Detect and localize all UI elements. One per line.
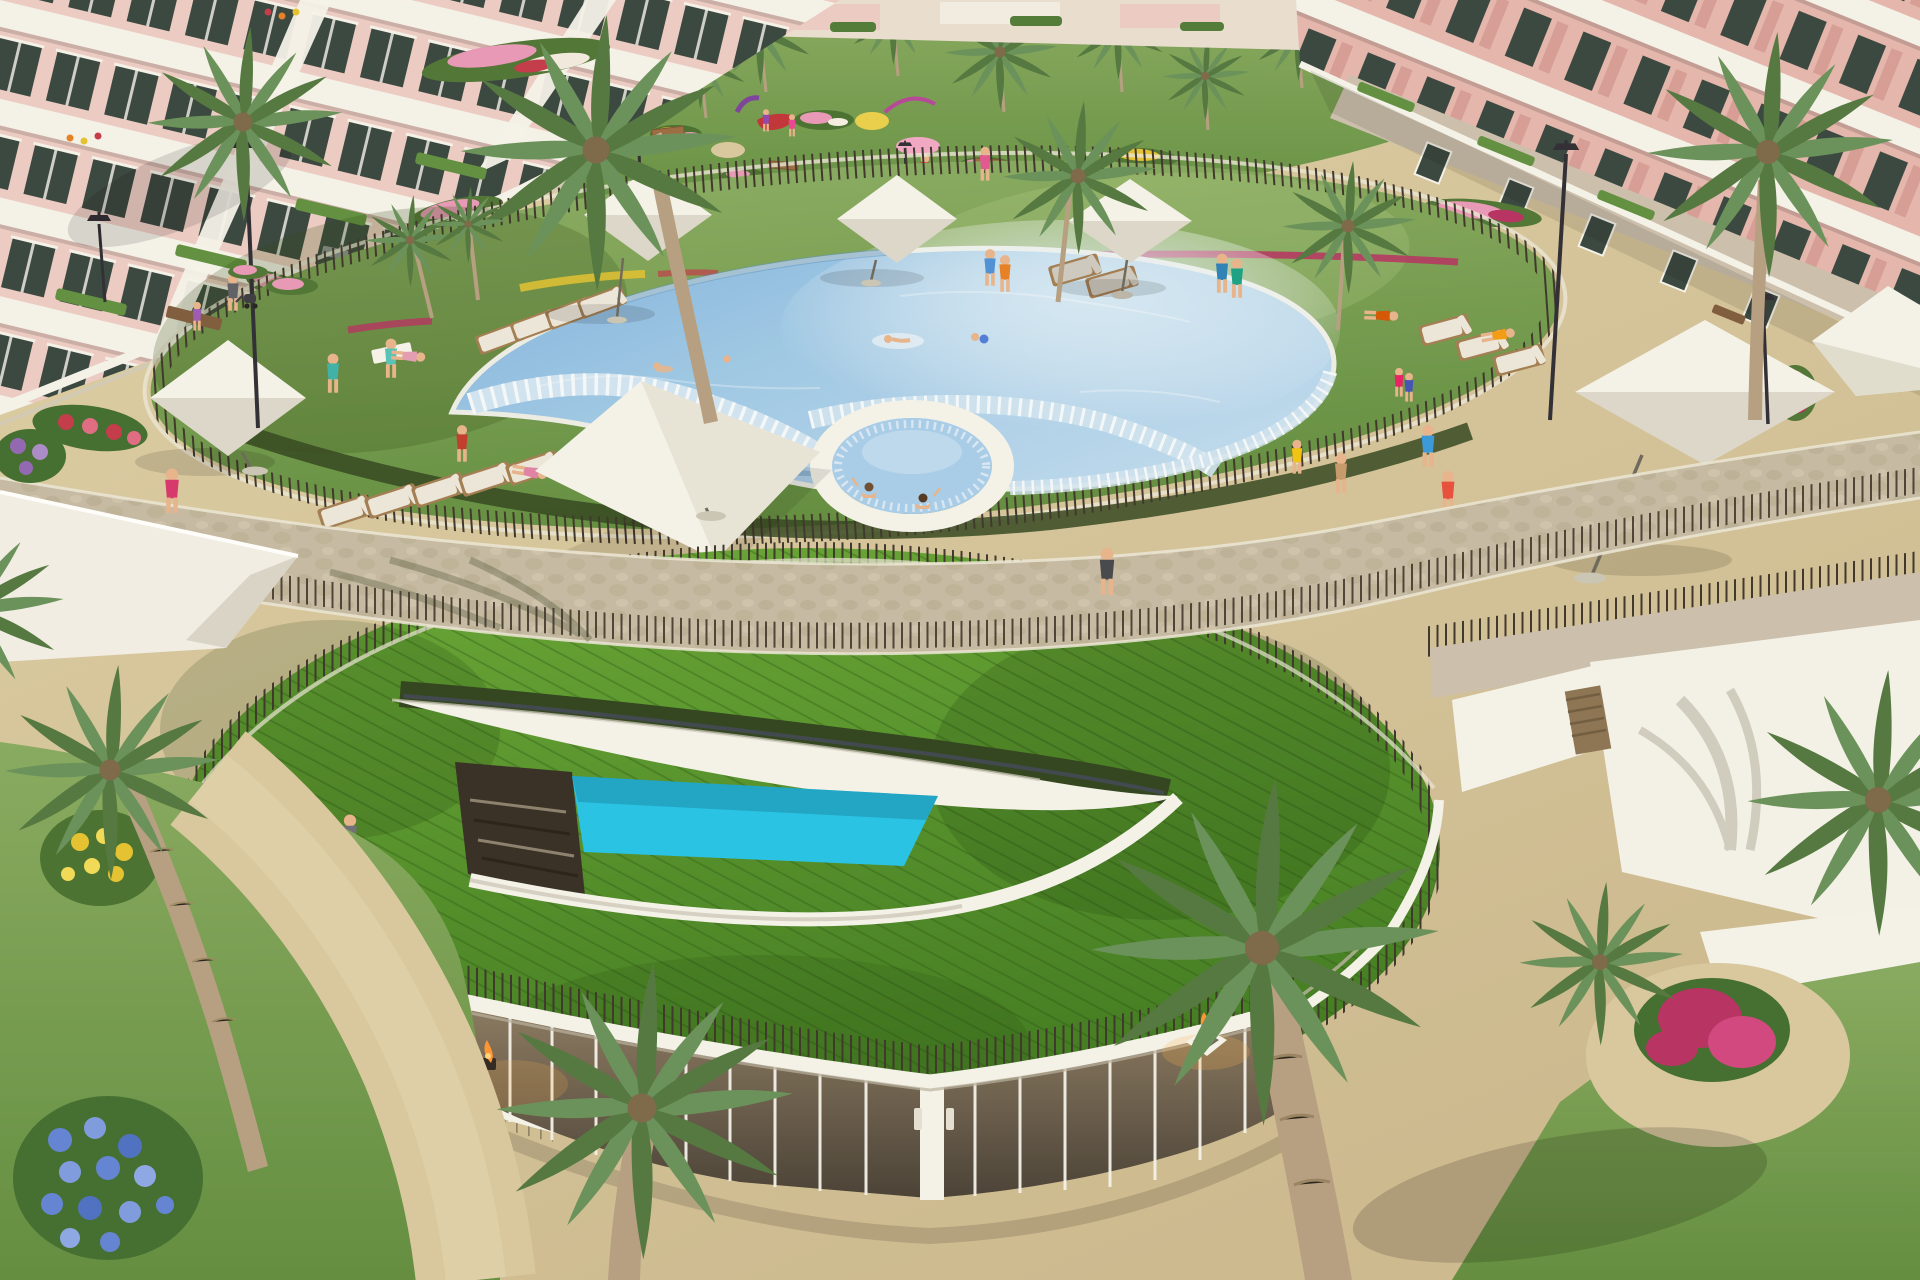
scene-canvas [0, 0, 1920, 1280]
sunlight-wash [0, 0, 1920, 1280]
resort-aerial-render: Aerial 3D rendering of a resort apartmen… [0, 0, 1920, 1280]
